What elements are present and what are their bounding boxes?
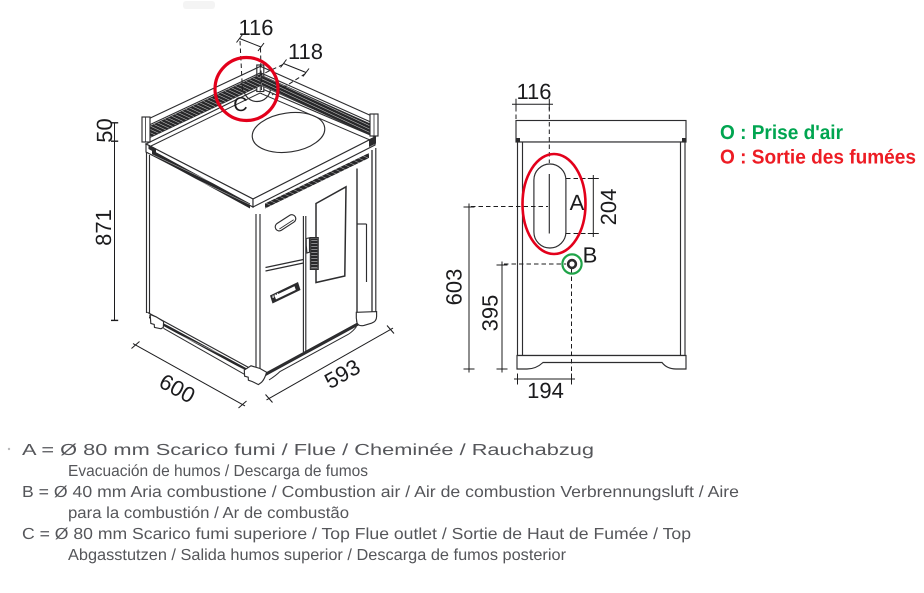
svg-text:C: C xyxy=(233,94,247,116)
svg-text:A: A xyxy=(570,190,585,215)
svg-text:Evacuación de humos / Descarga: Evacuación de humos / Descarga de fumos xyxy=(68,463,368,480)
svg-text:A = Ø 80 mm Scarico fumi / Fl: A = Ø 80 mm Scarico fumi / Flue / Chemin… xyxy=(22,442,594,459)
svg-text:para la combustión / Ar de com: para la combustión / Ar de combustão xyxy=(68,505,349,522)
svg-text:600: 600 xyxy=(155,369,199,409)
svg-text:C = Ø 80 mm Scarico fumi supe: C = Ø 80 mm Scarico fumi superiore / Top… xyxy=(22,526,691,543)
svg-text:Abgasstutzen / Salida humos s: Abgasstutzen / Salida humos superior / D… xyxy=(68,547,567,564)
svg-text:O : Sortie des fumées: O : Sortie des fumées xyxy=(720,147,916,169)
svg-text:871: 871 xyxy=(91,209,116,246)
svg-text:116: 116 xyxy=(516,79,551,104)
svg-text:204: 204 xyxy=(596,189,621,226)
svg-text:395: 395 xyxy=(478,295,503,332)
svg-text:593: 593 xyxy=(320,354,364,394)
svg-text:118: 118 xyxy=(288,39,323,64)
svg-text:194: 194 xyxy=(527,378,564,403)
svg-text:O : Prise d'air: O : Prise d'air xyxy=(720,122,843,144)
svg-text:B = Ø 40 mm Aria combustione: B = Ø 40 mm Aria combustione / Combustio… xyxy=(22,484,739,501)
svg-text:116: 116 xyxy=(238,15,273,40)
svg-text:B: B xyxy=(583,243,598,268)
svg-text:603: 603 xyxy=(442,269,467,306)
svg-text:50: 50 xyxy=(92,118,117,142)
